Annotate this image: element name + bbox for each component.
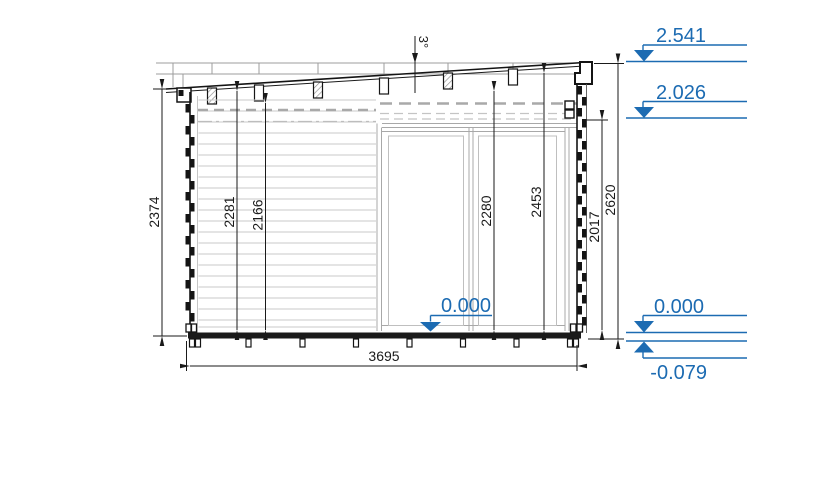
dim-height-right-outer: 2620 [588, 64, 624, 340]
right-corner-notches [578, 86, 587, 326]
level-roof-top: 2.541 [626, 25, 747, 62]
dim-wall-inner-2: 2166 [250, 103, 266, 330]
level-floor-right: 0.000 [626, 296, 747, 333]
dim-label: 2620 [602, 184, 618, 215]
level-label: 2.026 [656, 82, 706, 104]
level-label: -0.079 [650, 362, 707, 384]
level-floor-mid: 0.000 [420, 295, 492, 332]
level-label: 0.000 [441, 295, 491, 317]
right-wall [565, 84, 587, 333]
slope-annotation: 3° [412, 36, 431, 93]
right-corner-bottom-blocks [571, 324, 583, 332]
datum-triangle-icon [634, 50, 654, 62]
roof-left-block [177, 88, 191, 102]
right-header-blocks [565, 101, 574, 118]
hidden-lines [198, 104, 577, 122]
left-wall [186, 92, 377, 333]
roof: 3° [156, 36, 592, 104]
dim-label: 3695 [368, 348, 399, 364]
cad-canvas: 3° [0, 0, 827, 499]
datum-triangle-icon [634, 342, 654, 353]
level-wall-top: 2.026 [626, 82, 747, 118]
dim-label: 2281 [221, 196, 237, 227]
foundation-pads [190, 339, 579, 347]
dim-label: 2453 [528, 186, 544, 217]
roof-right-fascia [575, 62, 592, 84]
left-corner-bottom-blocks [186, 324, 197, 332]
dim-wall-inner-1: 2281 [221, 91, 237, 330]
slope-angle-label: 3° [416, 36, 431, 48]
level-label: 2.541 [656, 25, 706, 47]
datum-triangle-icon [634, 107, 654, 118]
level-label: 0.000 [654, 296, 704, 318]
datum-triangle-icon [420, 322, 441, 332]
dim-label: 2374 [146, 196, 162, 227]
elevation-drawing: 3° [0, 0, 827, 499]
floor-base [188, 333, 581, 348]
datum-triangle-icon [634, 321, 654, 333]
dim-label: 2017 [586, 211, 602, 242]
level-ground: -0.079 [626, 341, 747, 384]
dim-inner-right: 2453 [528, 73, 544, 330]
dim-label: 2166 [250, 199, 266, 230]
dim-height-left-outer: 2374 [146, 89, 187, 336]
dim-label: 2280 [478, 195, 494, 226]
